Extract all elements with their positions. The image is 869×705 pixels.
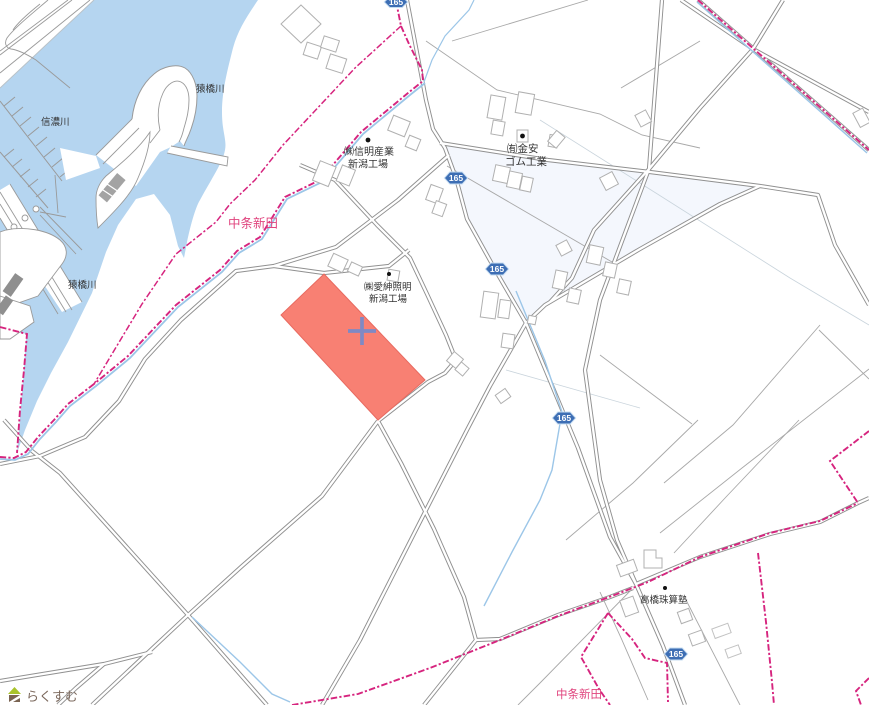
svg-text:高橋珠算塾: 高橋珠算塾	[640, 594, 688, 606]
svg-text:165: 165	[557, 413, 571, 423]
svg-text:らくすむ: らくすむ	[26, 689, 78, 704]
svg-text:新潟工場: 新潟工場	[369, 293, 408, 305]
svg-text:中条新田: 中条新田	[556, 687, 602, 701]
svg-text:㈱信明産業: ㈱信明産業	[344, 145, 394, 158]
svg-text:猿橋川: 猿橋川	[196, 83, 225, 95]
svg-text:165: 165	[449, 173, 463, 183]
svg-text:㈲金安: ㈲金安	[507, 142, 539, 155]
svg-text:㈱愛紳照明: ㈱愛紳照明	[364, 281, 412, 293]
svg-text:165: 165	[490, 264, 504, 274]
svg-text:信濃川: 信濃川	[41, 116, 70, 128]
svg-text:165: 165	[389, 0, 403, 7]
svg-text:猿橋川: 猿橋川	[68, 279, 97, 291]
svg-text:新潟工場: 新潟工場	[348, 158, 388, 171]
svg-text:中条新田: 中条新田	[228, 216, 278, 231]
svg-text:ゴム工業: ゴム工業	[505, 155, 547, 168]
svg-text:165: 165	[669, 649, 683, 659]
